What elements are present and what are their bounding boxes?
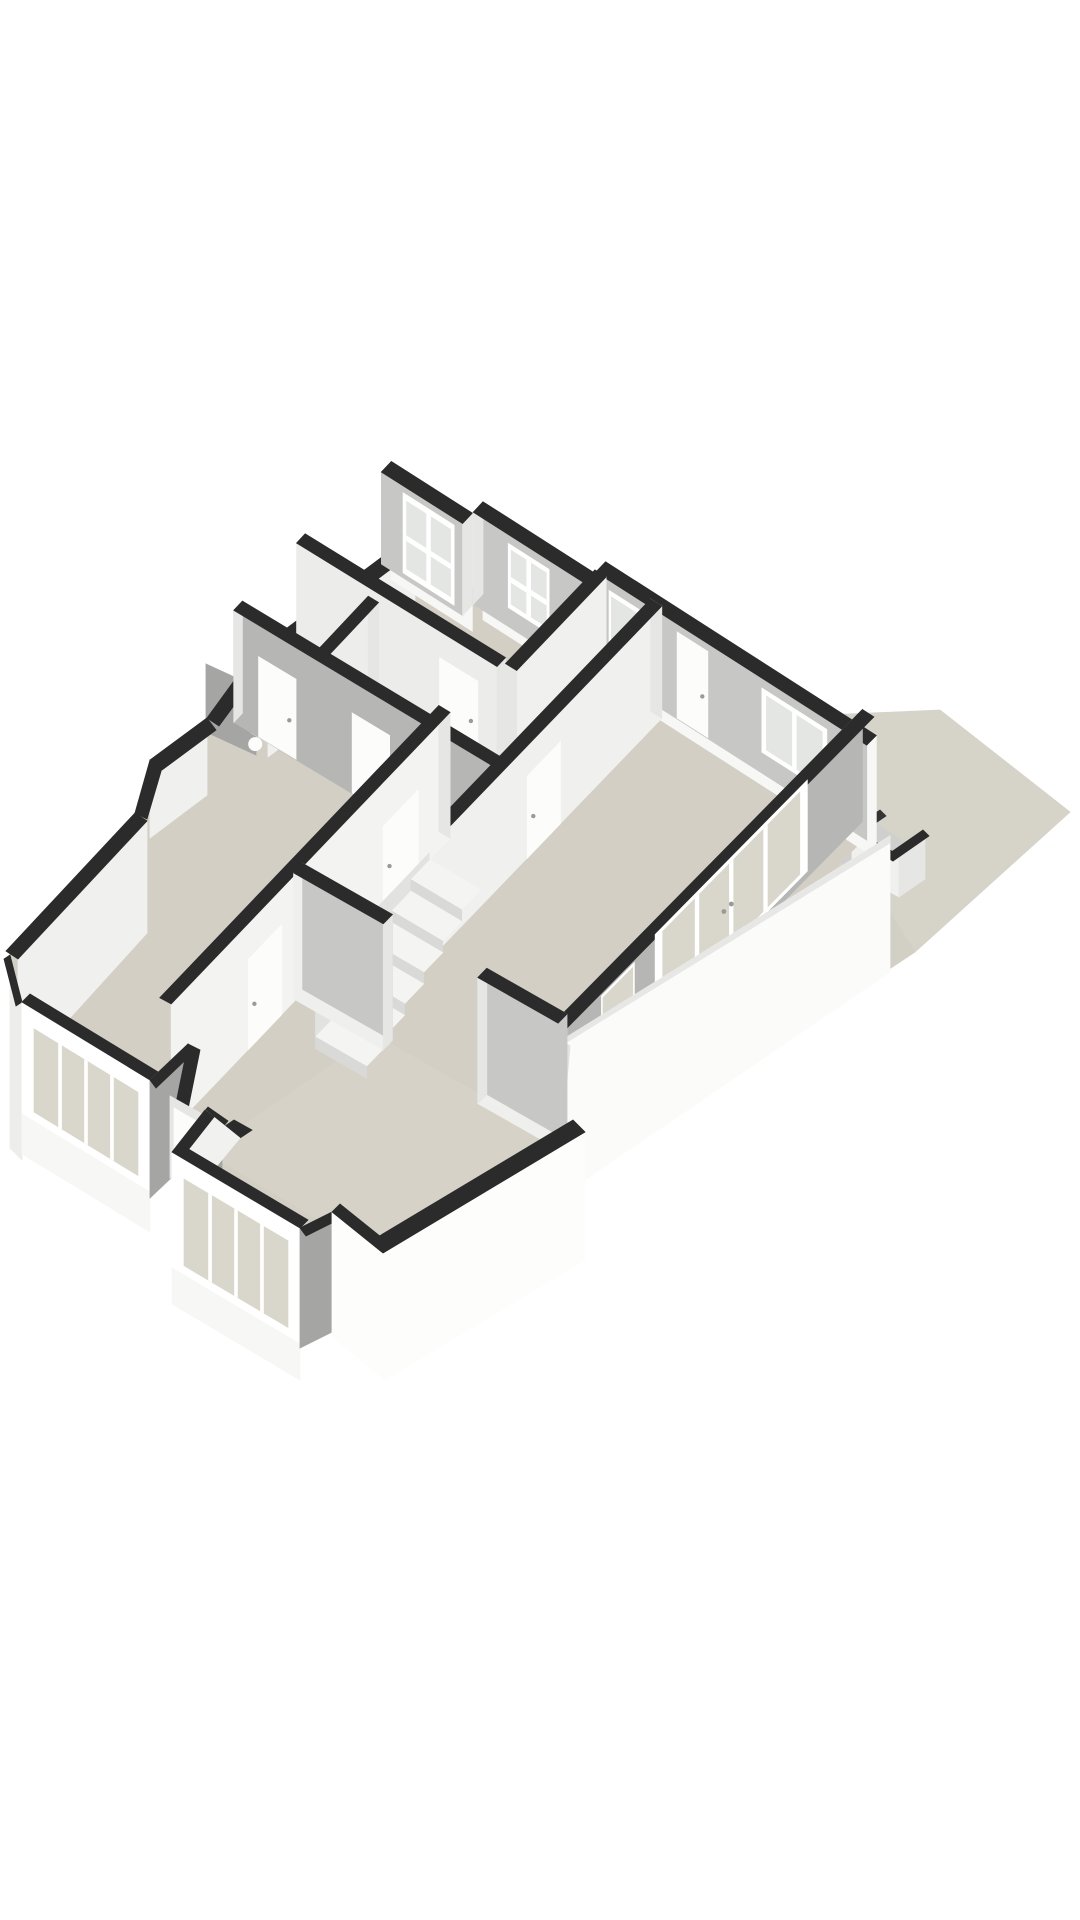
floorplan-3d-render — [0, 0, 1080, 1920]
floorplan-stage — [0, 0, 1080, 1920]
